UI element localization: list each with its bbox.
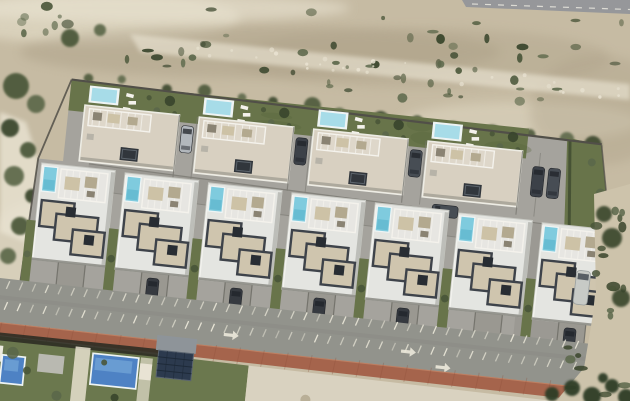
rock: [547, 84, 552, 89]
scrub-bush: [326, 84, 333, 88]
scrub-bush: [58, 14, 62, 18]
rock: [196, 47, 199, 50]
scrub-bush: [565, 355, 575, 363]
aerial-development-render: [0, 0, 630, 401]
rock: [208, 54, 212, 58]
rock: [365, 71, 368, 74]
villa-pool: [434, 124, 460, 140]
rock: [332, 69, 335, 72]
rock: [523, 73, 527, 77]
existing-roof: [37, 354, 65, 375]
scrub-bush: [458, 95, 463, 98]
scrub-bush: [407, 33, 414, 43]
terrace-furniture: [170, 201, 179, 208]
scrub-bush: [607, 308, 614, 313]
corner-tree: [545, 387, 559, 401]
stair-bulkhead: [417, 275, 428, 286]
terrace-furniture: [565, 236, 581, 250]
terrace-furniture: [168, 187, 181, 199]
scrub-bush: [427, 79, 433, 87]
terrace-furniture: [86, 191, 95, 198]
stair-bulkhead: [500, 285, 511, 296]
rock: [491, 76, 494, 79]
rock: [255, 56, 257, 58]
scrub-bush: [515, 97, 525, 106]
rock: [371, 59, 376, 64]
rock: [404, 62, 406, 64]
scrub-bush: [570, 44, 581, 50]
scrub-bush: [443, 93, 453, 97]
roof-pergola: [142, 179, 192, 213]
scrub-bush: [41, 2, 53, 11]
pool-shade: [377, 219, 389, 230]
scrub-bush: [472, 21, 481, 25]
scrub-bush: [21, 29, 27, 37]
scrub-bush: [619, 19, 624, 26]
sun-lounger: [243, 113, 251, 117]
stair-bulkhead: [482, 257, 493, 268]
scrub-bush: [151, 54, 163, 60]
scrub-bush: [450, 52, 458, 59]
stair-bulkhead: [250, 255, 261, 266]
terrace-furniture: [314, 206, 330, 220]
car-windshield: [183, 128, 192, 134]
corner-tree: [564, 380, 580, 396]
scrub-bush: [393, 75, 401, 80]
scrub-bush: [590, 222, 602, 230]
car-windshield: [315, 301, 324, 307]
scrub-bush: [612, 207, 619, 216]
rock: [305, 63, 308, 66]
rock: [274, 51, 278, 55]
car-windshield: [297, 140, 306, 146]
rock: [580, 88, 584, 92]
tree: [596, 206, 612, 222]
stair-bulkhead: [167, 245, 178, 256]
car-windshield: [550, 171, 559, 177]
villa-pool: [320, 112, 346, 128]
stair-bulkhead: [83, 235, 94, 246]
scrub-bush: [346, 65, 349, 69]
scrub-bush: [537, 97, 544, 101]
scrub-bush: [381, 16, 385, 20]
tree: [3, 73, 29, 99]
terrace-furniture: [242, 129, 253, 138]
scrub-bush: [200, 41, 206, 47]
sun-lounger: [472, 137, 480, 141]
stair-bulkhead: [334, 265, 345, 276]
tree: [27, 95, 45, 113]
tree: [612, 289, 630, 307]
rock: [372, 65, 374, 67]
scrub-bush: [427, 30, 439, 34]
rock: [598, 95, 601, 98]
terrace-furniture: [450, 150, 463, 160]
tree: [1, 119, 19, 137]
car-windshield: [148, 281, 157, 287]
terrace-furniture: [336, 138, 349, 148]
pool-shade: [543, 239, 555, 250]
scrub-bush: [436, 34, 445, 44]
terrace-furniture: [147, 186, 163, 200]
pool-shade: [126, 189, 138, 200]
terrace-furniture: [470, 153, 481, 162]
ac-unit: [201, 145, 209, 152]
terrace-furniture: [107, 114, 120, 124]
pool-shade: [210, 199, 222, 210]
stair-bulkhead: [315, 237, 326, 248]
villa-pool: [91, 88, 117, 104]
rock: [617, 94, 620, 97]
scrub-bush: [181, 59, 186, 68]
pool-shade: [293, 209, 305, 220]
pool-shade: [43, 179, 55, 190]
ac-unit: [430, 170, 438, 177]
terrace-furniture: [207, 124, 217, 133]
scrub-bush: [537, 54, 548, 58]
stair-bulkhead: [566, 267, 577, 278]
terrace-furniture: [337, 221, 346, 228]
terrace-furniture: [481, 226, 497, 240]
scrub-bush: [517, 53, 523, 62]
scrub-bush: [610, 62, 621, 66]
rock: [617, 87, 620, 90]
rock: [562, 91, 565, 94]
corner-tree: [605, 379, 619, 393]
scrub-bush: [472, 67, 477, 73]
stair-bulkhead: [149, 217, 160, 228]
tree: [0, 248, 16, 264]
terrace-furniture: [251, 196, 264, 208]
car-windshield: [411, 153, 420, 159]
roof-pergola: [392, 209, 442, 243]
scrub-bush: [397, 93, 407, 102]
scrub-bush: [291, 70, 296, 76]
ac-unit: [86, 133, 94, 140]
scrub-bush: [344, 88, 352, 92]
scrub-bush: [575, 353, 581, 358]
scrub-bush: [401, 73, 406, 83]
sun-lounger: [357, 125, 365, 129]
tree: [61, 29, 79, 47]
scrub-bush: [297, 49, 308, 56]
scrub-bush: [17, 18, 26, 26]
rock: [230, 49, 233, 52]
aerial-photo-svg: [0, 0, 630, 401]
rock: [553, 81, 556, 84]
scrub-bush: [332, 61, 340, 65]
terrace-furniture: [398, 216, 414, 230]
scrub-bush: [608, 312, 614, 319]
car-windshield: [231, 291, 240, 297]
villa-driveway-car: [179, 125, 194, 153]
stair-bulkhead: [232, 227, 243, 238]
stair-bulkhead: [65, 207, 76, 218]
sun-lounger: [129, 101, 137, 105]
terrace-furniture: [64, 176, 80, 190]
pool-shade: [460, 229, 472, 240]
terrace-furniture: [587, 251, 596, 258]
terrace-furniture: [335, 206, 348, 218]
roof-pergola: [475, 219, 525, 253]
terrace-furniture: [420, 231, 429, 238]
scrub-bush: [142, 49, 154, 53]
pool-ripple: [4, 359, 19, 372]
scrub-bush: [609, 286, 617, 291]
tree: [94, 24, 106, 36]
stair-bulkhead: [399, 247, 410, 258]
solar-array: [156, 350, 194, 381]
scrub-bush: [571, 19, 581, 22]
scrub-bush: [619, 209, 625, 216]
scrub-bush: [331, 42, 337, 50]
terrace-furniture: [356, 141, 367, 150]
scrub-bush: [597, 246, 605, 251]
car-windshield: [398, 311, 407, 317]
scrub-bush: [306, 8, 317, 16]
rock: [559, 90, 562, 93]
terrace-furniture: [436, 148, 446, 157]
scrub-bush: [206, 7, 217, 11]
pool-deck-pad: [139, 363, 153, 380]
terrace-furniture: [504, 241, 513, 248]
boundary-tree: [118, 75, 126, 83]
scrub-bush: [455, 67, 462, 74]
car-windshield: [534, 169, 543, 175]
scrub-bush: [598, 253, 608, 258]
villa-pool: [205, 100, 231, 116]
scrub-bush: [510, 75, 518, 85]
scrub-bush: [484, 34, 489, 44]
scrub-bush: [259, 67, 269, 74]
terrace-furniture: [501, 226, 514, 238]
scrub-bush: [125, 55, 130, 64]
villa-driveway-car: [408, 149, 423, 177]
rock: [269, 47, 274, 52]
rock: [356, 68, 360, 72]
roof-pergola: [225, 189, 275, 223]
tree: [4, 166, 24, 186]
rock: [323, 57, 328, 62]
rock: [306, 67, 309, 70]
terrace-furniture: [127, 117, 138, 126]
scrub-bush: [516, 87, 524, 90]
scrub-bush: [618, 222, 626, 233]
terrace-furniture: [418, 216, 431, 228]
rock: [319, 63, 321, 65]
scrub-bush: [592, 270, 600, 277]
scrub-bush: [437, 61, 444, 68]
scrub-bush: [61, 20, 73, 29]
scrub-bush: [574, 366, 588, 371]
terrace-furniture: [253, 211, 262, 218]
rock: [459, 82, 463, 86]
roof-pergola: [308, 199, 358, 233]
rock: [342, 67, 345, 70]
scrub-bush: [43, 28, 49, 36]
roof-pergola: [58, 169, 108, 203]
terrace-furniture: [321, 136, 331, 145]
tree: [602, 228, 622, 248]
corner-tree: [598, 373, 608, 383]
scrub-bush: [162, 65, 171, 68]
scrub-bush: [563, 345, 572, 349]
scrub-bush: [517, 44, 529, 51]
terrace-furniture: [84, 177, 97, 189]
tree: [20, 142, 36, 158]
scrub-bush: [223, 34, 229, 38]
villa-driveway-car: [293, 137, 308, 165]
scrub-bush: [52, 21, 58, 30]
car-windshield: [565, 331, 574, 337]
scrub-bush: [448, 43, 457, 50]
terrace-furniture: [231, 196, 247, 210]
terrace-furniture: [92, 112, 102, 121]
scrub-bush: [178, 47, 184, 56]
terrace-furniture: [222, 126, 235, 136]
scrub-bush: [189, 54, 197, 60]
ac-unit: [315, 157, 323, 164]
